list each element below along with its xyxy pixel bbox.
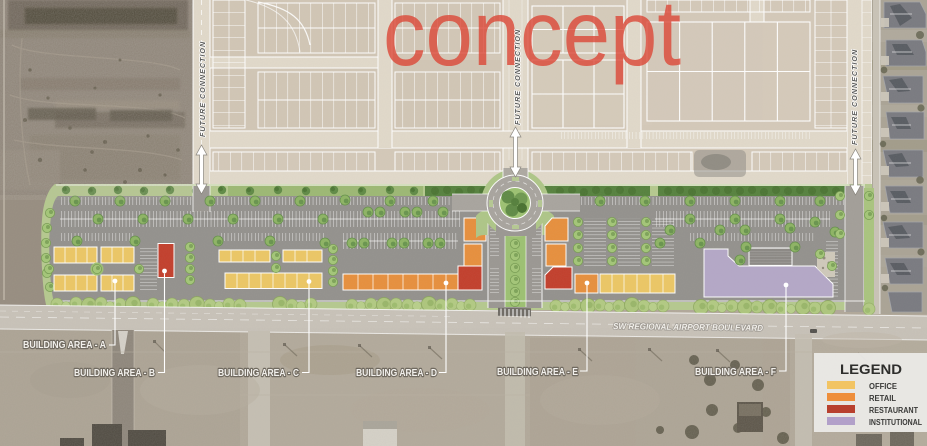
- svg-text:BUILDING AREA - F: BUILDING AREA - F: [695, 366, 776, 378]
- svg-text:FUTURE CONNECTION: FUTURE CONNECTION: [198, 41, 207, 137]
- svg-text:RETAIL: RETAIL: [869, 394, 896, 403]
- svg-text:OFFICE: OFFICE: [869, 382, 898, 391]
- svg-text:BUILDING AREA - E: BUILDING AREA - E: [497, 366, 578, 378]
- svg-text:concept: concept: [383, 0, 681, 85]
- svg-text:BUILDING AREA - B: BUILDING AREA - B: [74, 367, 155, 379]
- svg-text:BUILDING AREA - C: BUILDING AREA - C: [218, 367, 299, 379]
- svg-text:FUTURE CONNECTION: FUTURE CONNECTION: [850, 49, 859, 145]
- svg-text:RESTAURANT: RESTAURANT: [869, 406, 918, 415]
- svg-text:FUTURE CONNECTION: FUTURE CONNECTION: [513, 29, 522, 125]
- svg-text:BUILDING AREA - D: BUILDING AREA - D: [356, 367, 437, 379]
- svg-text:LEGEND: LEGEND: [840, 361, 902, 377]
- svg-text:INSTITUTIONAL: INSTITUTIONAL: [869, 418, 922, 427]
- svg-text:BUILDING AREA - A: BUILDING AREA - A: [23, 339, 106, 351]
